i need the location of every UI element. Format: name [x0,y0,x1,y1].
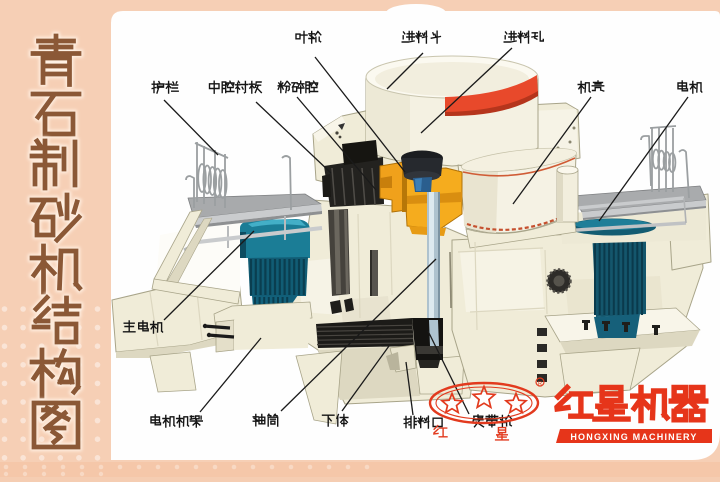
svg-text:HONGXING MACHINERY: HONGXING MACHINERY [570,432,697,442]
svg-text:R: R [538,381,542,387]
